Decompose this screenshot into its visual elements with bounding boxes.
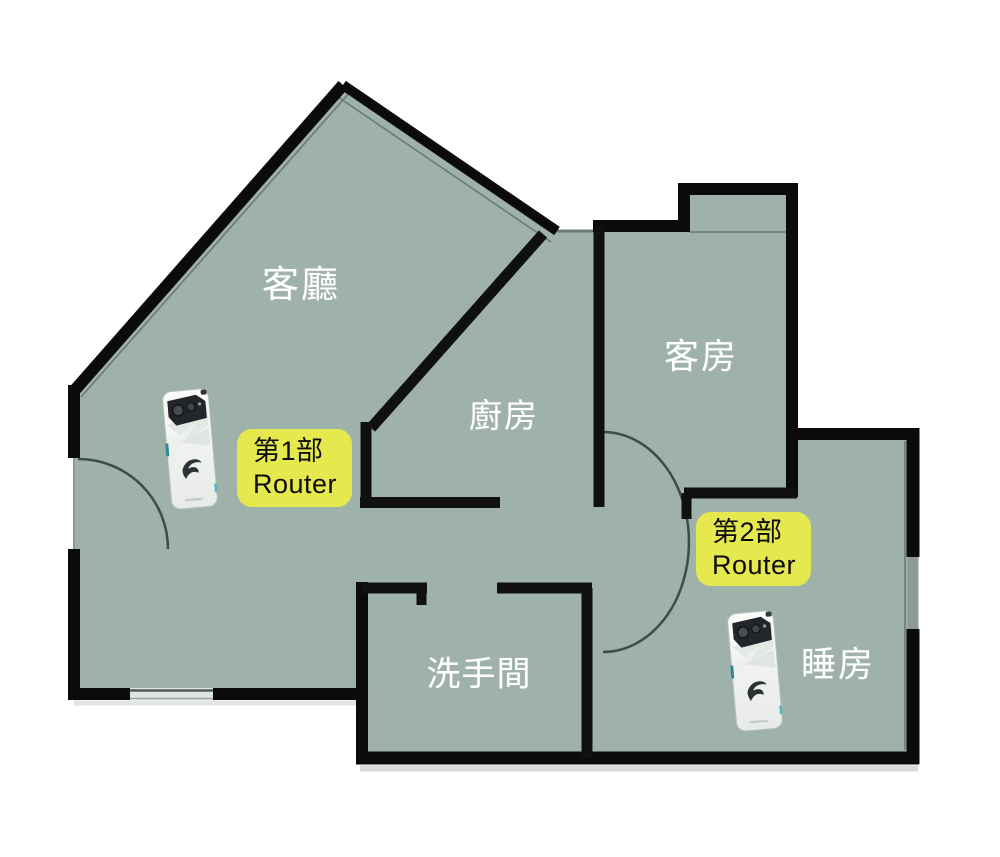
router-1-badge: 第1部 Router	[237, 429, 352, 507]
window-right-wall	[908, 556, 919, 630]
window-bottom-left	[128, 688, 214, 700]
room-label-bathroom: 洗手間	[427, 647, 532, 696]
router-2-badge: 第2部 Router	[696, 512, 811, 586]
floor-plan-page: 客廳 廚房 客房 洗手間 睡房 第1部 Router 第2部 Router	[0, 0, 1000, 857]
room-label-kitchen: 廚房	[469, 389, 539, 437]
room-label-bedroom: 睡房	[801, 637, 875, 688]
room-label-living: 客廳	[262, 254, 340, 308]
router-2-badge-line1: 第2部	[712, 516, 811, 549]
router-1-badge-line2: Router	[253, 468, 352, 501]
router-2-badge-line2: Router	[712, 549, 811, 582]
room-label-guest: 客房	[664, 329, 738, 380]
router-1-badge-line1: 第1部	[253, 435, 352, 468]
